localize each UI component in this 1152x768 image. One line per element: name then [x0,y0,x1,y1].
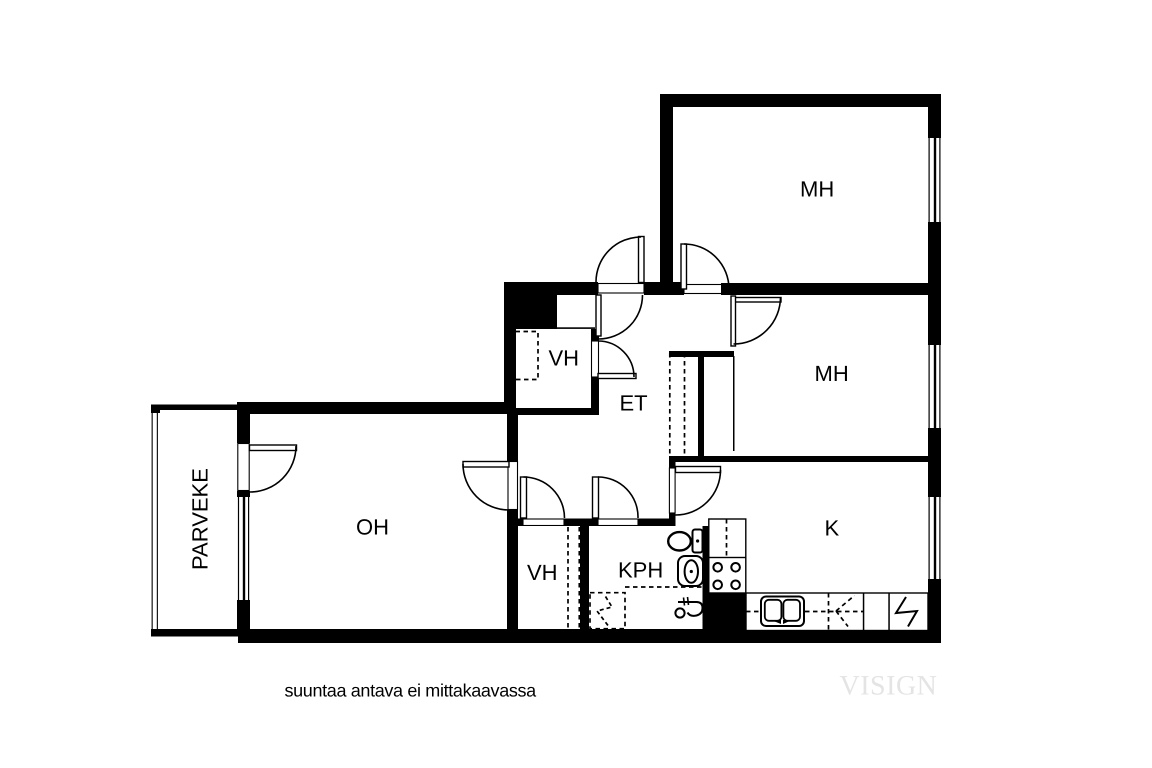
svg-text:VH: VH [527,560,558,585]
svg-text:K: K [825,516,840,541]
svg-text:OH: OH [356,515,389,540]
svg-text:PARVEKE: PARVEKE [188,468,213,570]
svg-text:suuntaa antava ei mittakaavass: suuntaa antava ei mittakaavassa [285,681,538,701]
svg-text:KPH: KPH [618,558,663,583]
svg-text:ET: ET [620,391,648,416]
svg-text:MH: MH [815,361,849,386]
svg-text:MH: MH [800,177,834,202]
svg-text:VH: VH [549,346,580,371]
svg-text:VISIGN: VISIGN [840,671,938,702]
